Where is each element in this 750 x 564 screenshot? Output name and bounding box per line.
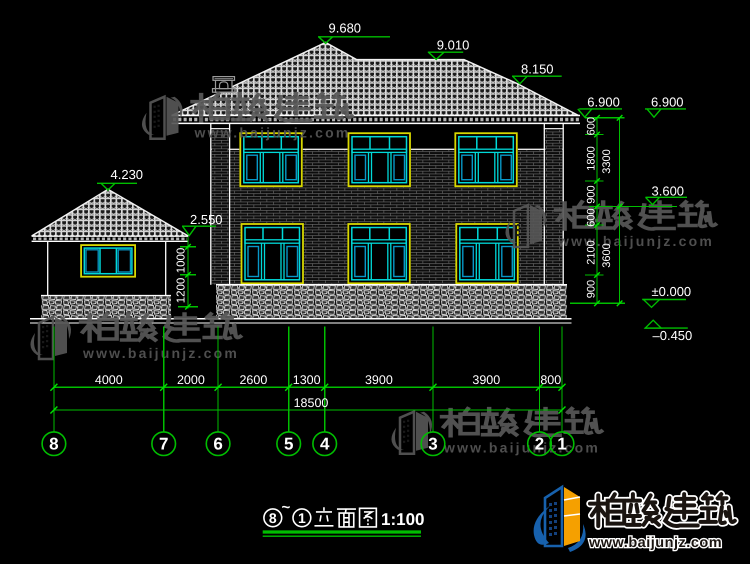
svg-text:6.900: 6.900 [587,95,620,110]
svg-text:1800: 1800 [586,146,598,170]
svg-text:8.150: 8.150 [521,61,554,76]
svg-text:4.230: 4.230 [111,167,144,182]
svg-text:2: 2 [535,435,544,454]
svg-text:7: 7 [159,435,168,454]
svg-text:1: 1 [298,510,306,526]
svg-text:900: 900 [586,280,598,298]
svg-text:600: 600 [586,117,598,135]
svg-text:900: 900 [586,185,598,203]
svg-text:3.600: 3.600 [652,184,685,199]
svg-text:1300: 1300 [293,373,321,387]
svg-text:600: 600 [586,208,598,226]
svg-text:~: ~ [282,499,291,516]
svg-text:8: 8 [269,510,277,526]
svg-text:3300: 3300 [601,149,613,173]
svg-text:3: 3 [428,435,437,454]
svg-text:6.900: 6.900 [651,95,684,110]
svg-text:–0.450: –0.450 [653,328,693,343]
svg-text:9.010: 9.010 [437,37,470,52]
svg-text:9.680: 9.680 [329,21,362,36]
svg-text:1000: 1000 [176,248,188,274]
svg-text:3600: 3600 [601,243,613,267]
svg-text:2600: 2600 [239,373,267,387]
svg-text:18500: 18500 [294,396,329,410]
svg-text:6: 6 [213,435,222,454]
svg-text:1200: 1200 [176,278,188,304]
svg-text:8: 8 [49,435,58,454]
svg-text:3900: 3900 [365,373,393,387]
svg-text:4000: 4000 [95,373,123,387]
svg-text:800: 800 [540,373,561,387]
svg-text:1:100: 1:100 [381,510,424,529]
svg-text:2.550: 2.550 [190,212,223,227]
svg-text:www.baijunjz.com: www.baijunjz.com [588,535,722,551]
svg-text:4: 4 [320,435,330,454]
svg-text:5: 5 [284,435,293,454]
svg-text:2000: 2000 [177,373,205,387]
svg-text:±0.000: ±0.000 [652,284,692,299]
svg-text:1: 1 [557,435,566,454]
svg-text:2100: 2100 [586,240,598,264]
svg-text:3900: 3900 [472,373,500,387]
